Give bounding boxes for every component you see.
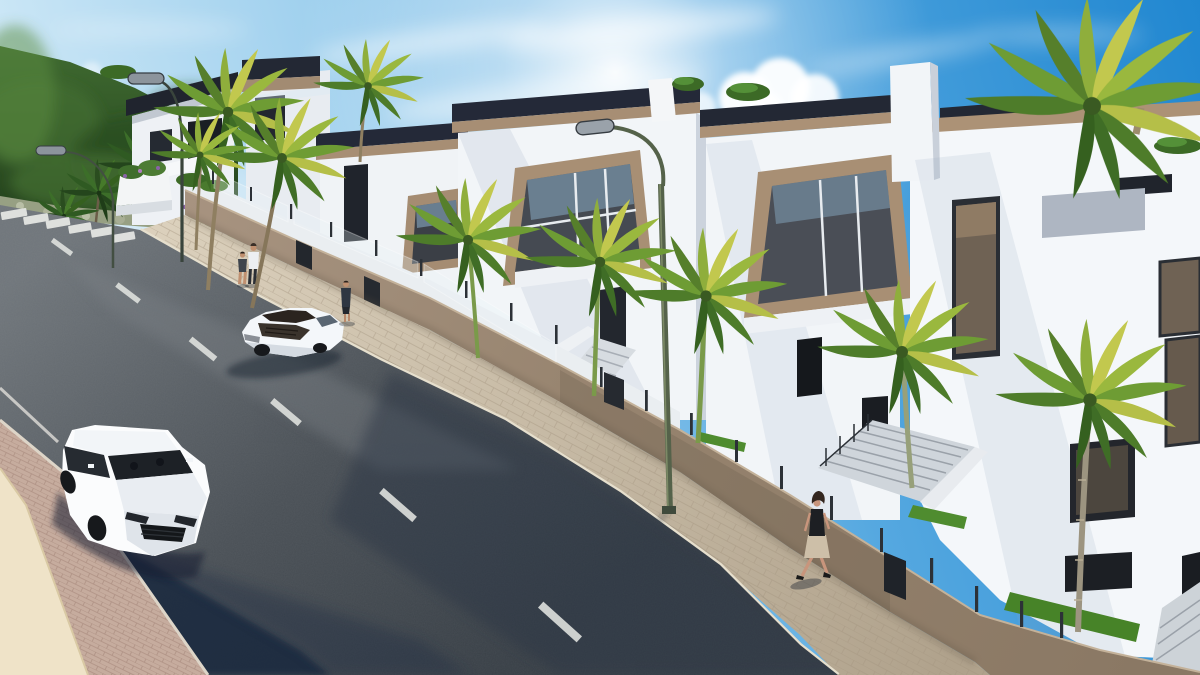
render-canvas (0, 0, 1200, 675)
skirt (804, 535, 830, 558)
window (1160, 258, 1200, 336)
architectural-render (0, 0, 1200, 675)
balcony (1042, 188, 1145, 238)
window (150, 129, 172, 163)
chimney (648, 78, 676, 122)
mirror-right (186, 458, 193, 462)
driver-silhouette (130, 462, 138, 470)
basement-window (1065, 552, 1132, 592)
window (1166, 336, 1200, 446)
passenger-silhouette (156, 458, 164, 466)
top (809, 509, 825, 536)
rear-wheel (254, 344, 270, 356)
hood (116, 473, 207, 516)
entry-door (797, 337, 822, 397)
front-wheel (313, 343, 327, 353)
mirror-left (88, 464, 94, 468)
window (344, 164, 368, 242)
